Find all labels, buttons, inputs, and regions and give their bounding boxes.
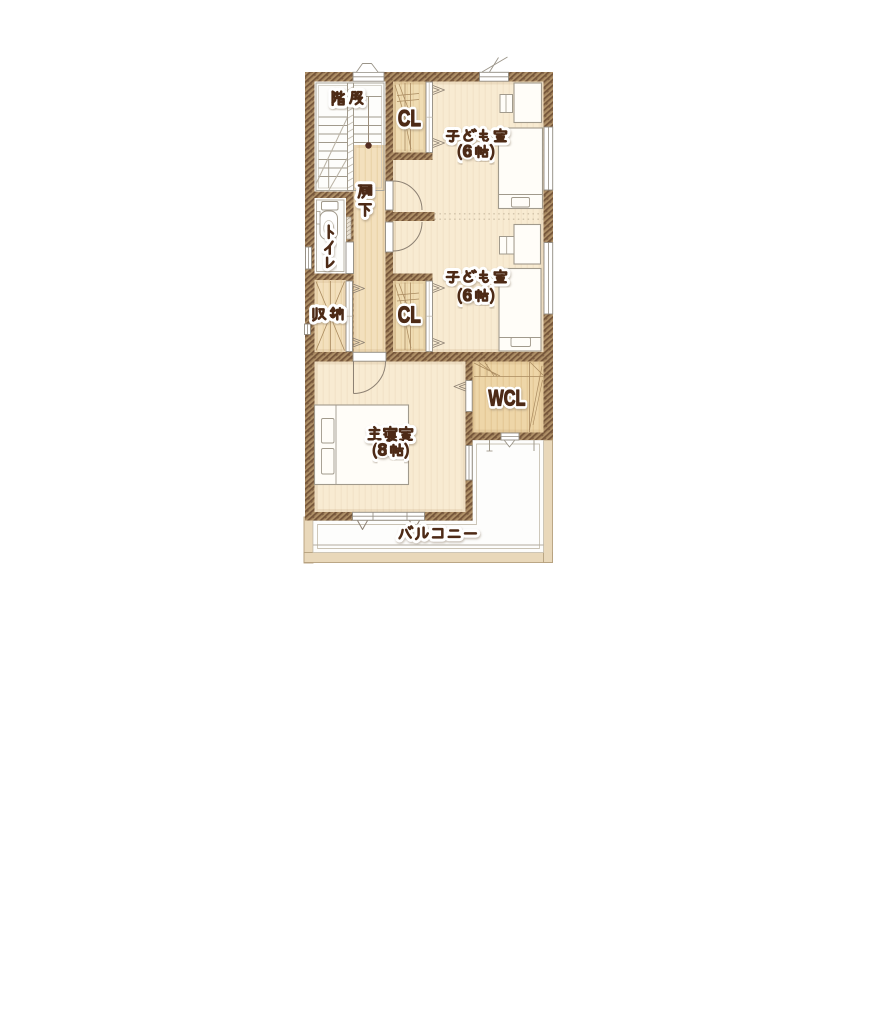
svg-text:6: 6 (463, 141, 473, 161)
svg-text:6: 6 (463, 285, 473, 305)
svg-text:WCL: WCL (488, 386, 525, 411)
svg-text:CL: CL (398, 105, 421, 131)
svg-text:8: 8 (378, 440, 388, 460)
svg-text:CL: CL (398, 302, 421, 328)
